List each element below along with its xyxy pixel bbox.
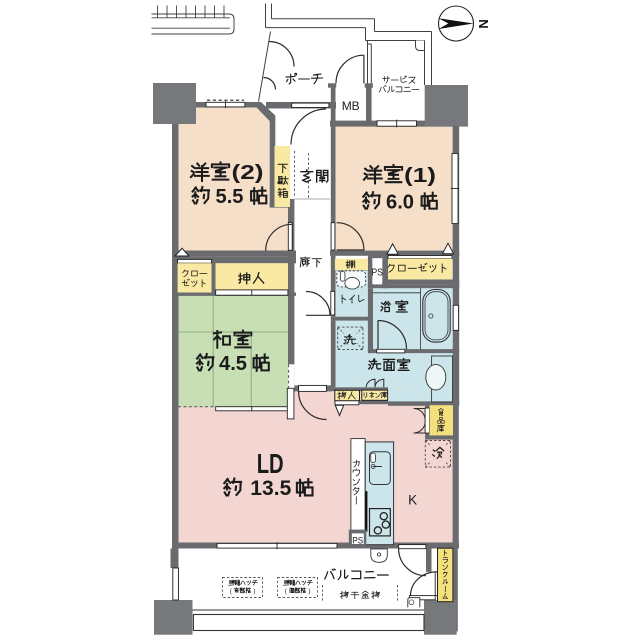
svg-text:LD: LD [257, 448, 284, 479]
svg-text:N: N [476, 19, 491, 28]
svg-text:4.5: 4.5 [219, 352, 247, 375]
svg-text:PS: PS [352, 536, 363, 547]
svg-text:MB: MB [342, 99, 360, 113]
svg-text:): ) [253, 588, 255, 595]
svg-text:K: K [408, 493, 417, 508]
svg-text:(2): (2) [232, 162, 264, 184]
svg-text:13.5: 13.5 [250, 477, 291, 500]
svg-text:): ) [308, 588, 310, 595]
svg-text:5.5: 5.5 [216, 185, 244, 208]
svg-text:(1): (1) [404, 165, 436, 187]
svg-text:6.0: 6.0 [386, 190, 414, 213]
svg-text:PS: PS [372, 267, 384, 279]
